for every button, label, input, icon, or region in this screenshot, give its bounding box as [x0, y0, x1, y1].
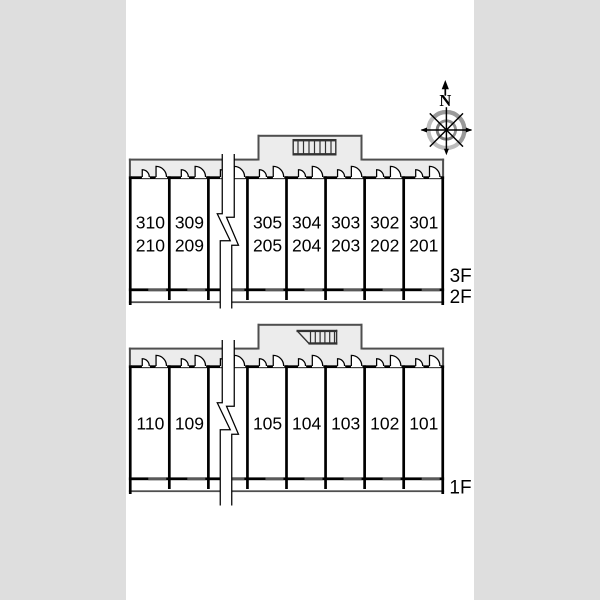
svg-text:209: 209: [175, 236, 204, 256]
svg-text:2F: 2F: [450, 287, 472, 308]
svg-text:302: 302: [370, 213, 399, 233]
svg-text:104: 104: [292, 414, 321, 434]
svg-text:204: 204: [292, 236, 321, 256]
svg-text:301: 301: [409, 213, 438, 233]
svg-text:210: 210: [136, 236, 165, 256]
svg-text:1F: 1F: [449, 478, 471, 499]
svg-text:103: 103: [331, 414, 360, 434]
svg-text:102: 102: [370, 414, 399, 434]
svg-text:110: 110: [136, 414, 164, 434]
svg-text:304: 304: [292, 213, 321, 233]
svg-text:109: 109: [175, 414, 204, 434]
svg-text:3F: 3F: [450, 266, 472, 287]
svg-text:305: 305: [253, 213, 282, 233]
svg-text:303: 303: [331, 213, 360, 233]
svg-text:309: 309: [175, 213, 204, 233]
svg-text:105: 105: [253, 414, 282, 434]
svg-text:202: 202: [370, 236, 399, 256]
svg-text:203: 203: [331, 236, 360, 256]
svg-text:101: 101: [409, 414, 438, 434]
svg-text:310: 310: [136, 213, 165, 233]
svg-text:201: 201: [409, 236, 438, 256]
svg-text:205: 205: [253, 236, 282, 256]
